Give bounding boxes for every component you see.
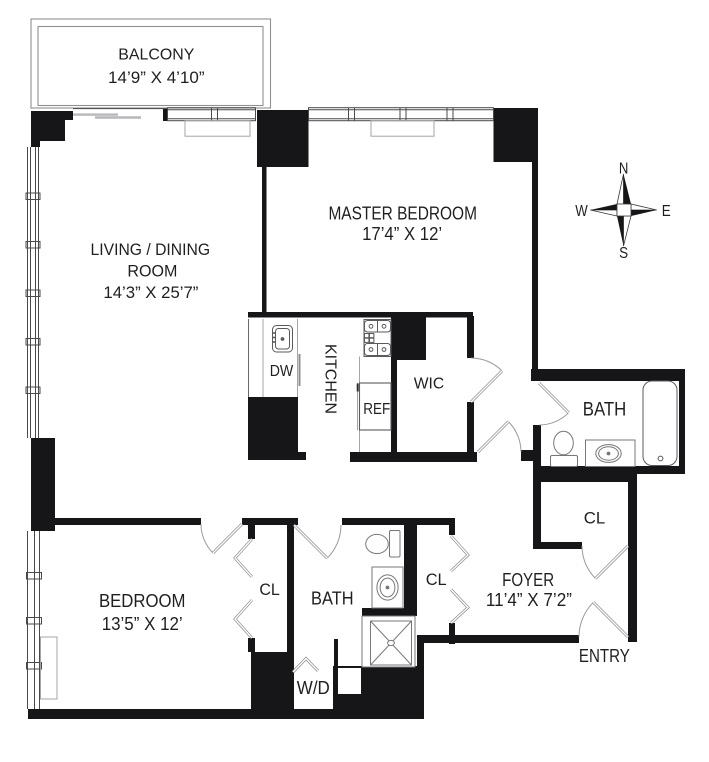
svg-text:CL: CL: [584, 509, 606, 528]
svg-text:W: W: [575, 203, 588, 220]
svg-text:E: E: [662, 203, 671, 220]
svg-text:14’9” X 4’10”: 14’9” X 4’10”: [108, 69, 205, 87]
svg-text:13’5” X 12’: 13’5” X 12’: [102, 614, 183, 634]
svg-text:N: N: [619, 160, 629, 177]
svg-text:BEDROOM: BEDROOM: [99, 591, 186, 611]
svg-text:17’4” X 12’: 17’4” X 12’: [362, 224, 442, 244]
svg-text:FOYER: FOYER: [502, 570, 554, 590]
svg-text:REF: REF: [363, 401, 390, 418]
svg-text:BATH: BATH: [311, 589, 354, 609]
svg-text:ENTRY: ENTRY: [579, 646, 630, 666]
svg-text:11’4” X 7’2”: 11’4” X 7’2”: [486, 590, 572, 610]
svg-text:14’3” X 25’7”: 14’3” X 25’7”: [103, 284, 198, 302]
svg-text:BATH: BATH: [583, 399, 627, 421]
svg-text:DW: DW: [270, 363, 294, 380]
svg-text:LIVING / DINING: LIVING / DINING: [91, 241, 211, 259]
svg-text:S: S: [619, 245, 628, 262]
svg-text:W/D: W/D: [297, 678, 330, 698]
svg-text:KITCHEN: KITCHEN: [322, 344, 339, 414]
svg-text:ROOM: ROOM: [127, 262, 177, 280]
svg-text:CL: CL: [426, 570, 447, 589]
svg-text:CL: CL: [259, 580, 280, 599]
svg-text:MASTER BEDROOM: MASTER BEDROOM: [328, 203, 477, 223]
svg-text:BALCONY: BALCONY: [118, 46, 194, 63]
svg-text:WIC: WIC: [414, 375, 445, 392]
